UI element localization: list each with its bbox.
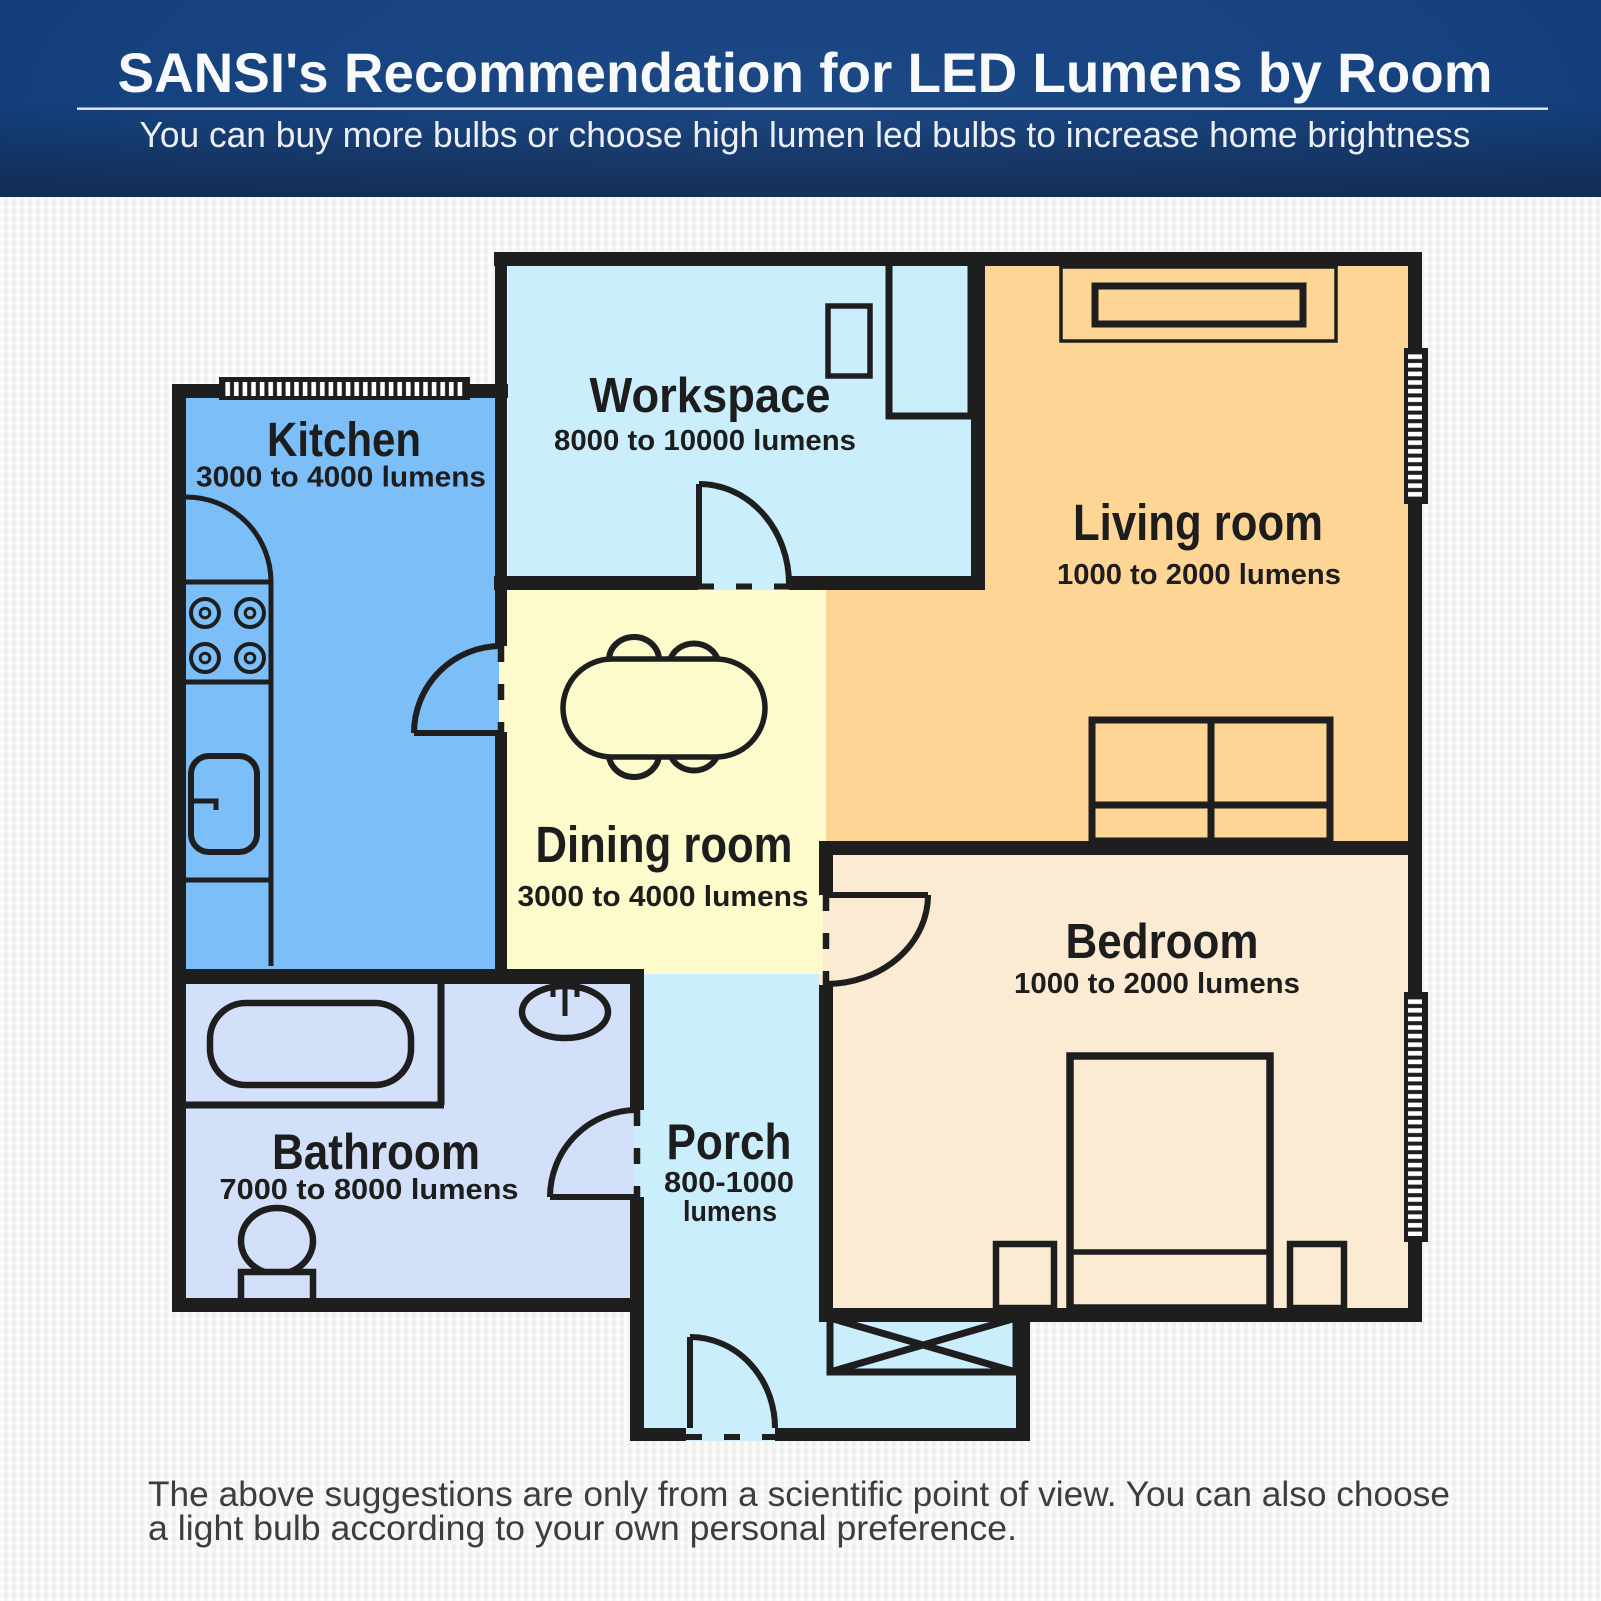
- svg-text:Kitchen: Kitchen: [267, 414, 421, 467]
- svg-text:Bathroom: Bathroom: [272, 1124, 480, 1180]
- svg-text:8000 to 10000 lumens: 8000 to 10000 lumens: [554, 425, 856, 457]
- svg-text:You can buy more bulbs or choo: You can buy more bulbs or choose high lu…: [140, 114, 1471, 155]
- svg-text:SANSI's Recommendation for LED: SANSI's Recommendation for LED Lumens by…: [118, 41, 1493, 104]
- svg-text:lumens: lumens: [683, 1196, 777, 1228]
- svg-text:Dining room: Dining room: [536, 816, 793, 873]
- svg-text:a light bulb according to your: a light bulb according to your own perso…: [148, 1508, 1017, 1548]
- svg-text:3000 to 4000 lumens: 3000 to 4000 lumens: [518, 881, 809, 913]
- svg-text:1000 to 2000 lumens: 1000 to 2000 lumens: [1014, 968, 1300, 1000]
- svg-text:Workspace: Workspace: [590, 369, 831, 423]
- svg-text:3000 to 4000 lumens: 3000 to 4000 lumens: [196, 462, 486, 494]
- svg-text:Living room: Living room: [1073, 494, 1323, 551]
- svg-text:800-1000: 800-1000: [664, 1167, 794, 1199]
- svg-text:Bedroom: Bedroom: [1066, 915, 1259, 969]
- svg-text:1000 to 2000 lumens: 1000 to 2000 lumens: [1057, 559, 1341, 591]
- svg-text:Porch: Porch: [667, 1114, 792, 1170]
- svg-text:7000 to 8000 lumens: 7000 to 8000 lumens: [220, 1174, 519, 1206]
